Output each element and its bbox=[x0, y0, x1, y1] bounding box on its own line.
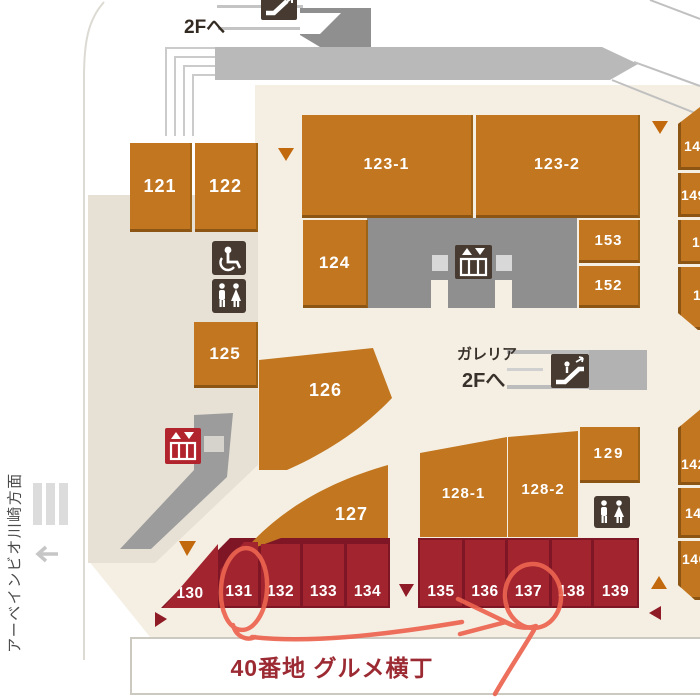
store-block-122: 122 bbox=[195, 143, 258, 232]
lobby-door-gap bbox=[495, 280, 512, 308]
lobby-panel bbox=[496, 255, 512, 271]
galleria-walkway bbox=[589, 350, 647, 390]
side-direction-label: アーベインビオ川崎方面 bbox=[4, 433, 25, 693]
stall-block-134: 134 bbox=[347, 544, 388, 606]
mall-floor-map: { "labels": { "upper_escalator_dest": "2… bbox=[0, 0, 700, 700]
store-block-153: 153 bbox=[579, 220, 640, 263]
store-block-125: 125 bbox=[194, 322, 258, 388]
galleria-label: ガレリア bbox=[455, 343, 517, 364]
stall-block-133: 133 bbox=[303, 544, 344, 606]
store-block-partial-149: 149 bbox=[678, 173, 700, 217]
bottom-area-bar: 40番地 グルメ横丁 bbox=[130, 637, 700, 695]
escalator-rail bbox=[507, 368, 543, 371]
store-block-partial-1x: 1 bbox=[678, 220, 700, 264]
walkway-band bbox=[215, 47, 638, 80]
lobby-door-gap bbox=[431, 280, 448, 308]
store-block-123-2: 123-2 bbox=[476, 115, 640, 218]
store-block-128-2: 128-2 bbox=[508, 428, 578, 537]
shaft-window bbox=[204, 436, 224, 452]
store-block-129: 129 bbox=[580, 427, 640, 483]
stall-block-135: 135 bbox=[420, 540, 462, 606]
stall-block-138: 138 bbox=[552, 540, 591, 606]
stall-block-137: 137 bbox=[508, 540, 549, 606]
escalator-rail bbox=[507, 385, 591, 389]
lobby-panel bbox=[432, 255, 448, 271]
stall-block-136: 136 bbox=[465, 540, 505, 606]
escalator-rail bbox=[507, 350, 591, 354]
store-block-123-1: 123-1 bbox=[302, 115, 473, 218]
store-block-152: 152 bbox=[579, 266, 640, 308]
store-block-124: 124 bbox=[303, 220, 368, 308]
stair-lines bbox=[166, 48, 215, 136]
elevator-lobby bbox=[367, 218, 577, 308]
store-block-partial-14x: 14 bbox=[678, 488, 700, 538]
stall-block-139: 139 bbox=[594, 540, 637, 606]
to-2f-label: 2Fへ bbox=[184, 12, 225, 39]
galleria-to-2f-label: 2Fへ bbox=[462, 364, 505, 393]
escalator-rail bbox=[217, 5, 303, 8]
bottom-area-label: 40番地 グルメ横丁 bbox=[231, 649, 434, 683]
store-block-121: 121 bbox=[130, 143, 192, 232]
stall-block-132: 132 bbox=[261, 544, 300, 606]
